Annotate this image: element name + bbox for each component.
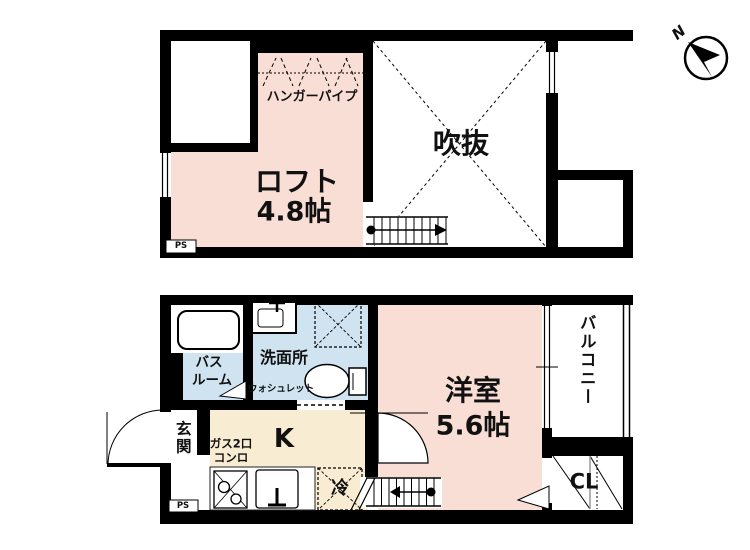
ps-upper-label: PS	[175, 242, 187, 251]
stove-label-line1: ガス2口	[210, 438, 253, 450]
ps-lower-label: PS	[177, 502, 189, 511]
void-label: 吹抜	[433, 130, 489, 158]
entrance-passage	[197, 455, 210, 510]
washroom-label: 洗面所	[260, 350, 308, 366]
loft-size-label: 4.8帖	[257, 199, 332, 226]
washlet-label: ウォシュレット	[248, 384, 314, 394]
western-room-size-label: 5.6帖	[436, 413, 511, 440]
kitchen-label: K	[274, 426, 294, 452]
stove-icon	[214, 471, 247, 508]
lower-floor-plan	[107, 295, 633, 524]
compass-icon	[685, 37, 727, 79]
bathtub-icon	[178, 311, 239, 349]
closet-label: CL	[570, 472, 599, 493]
lower-stairs	[350, 477, 442, 512]
entrance-label: 玄関	[174, 421, 190, 456]
loft-label: ロフト	[255, 168, 339, 196]
upper-left-window	[160, 153, 171, 197]
floor-plan: ロフト 4.8帖 ハンガーパイプ 吹抜 PS 洋室 5.6帖 K ガス2口 コン…	[0, 0, 750, 550]
entrance-door	[107, 410, 163, 465]
washroom-door	[297, 400, 345, 410]
upper-floor-plan	[160, 30, 633, 258]
stove-label-line2: コンロ	[214, 452, 249, 464]
floor-plan-drawing	[0, 0, 750, 550]
refrigerator-label: 冷	[331, 480, 349, 498]
balcony-rail	[624, 305, 630, 437]
hanger-pipe-label: ハンガーパイプ	[267, 91, 358, 104]
void-window	[546, 52, 558, 93]
bathroom-label-line1: バス	[196, 356, 223, 370]
kitchen-sink-icon	[256, 470, 298, 508]
western-room-label: 洋室	[445, 377, 501, 405]
balcony-label: バルコニー	[578, 314, 595, 407]
bathroom-label-line2: ルーム	[192, 374, 232, 388]
upper-stairs	[366, 216, 448, 245]
washbasin-icon	[252, 298, 296, 333]
